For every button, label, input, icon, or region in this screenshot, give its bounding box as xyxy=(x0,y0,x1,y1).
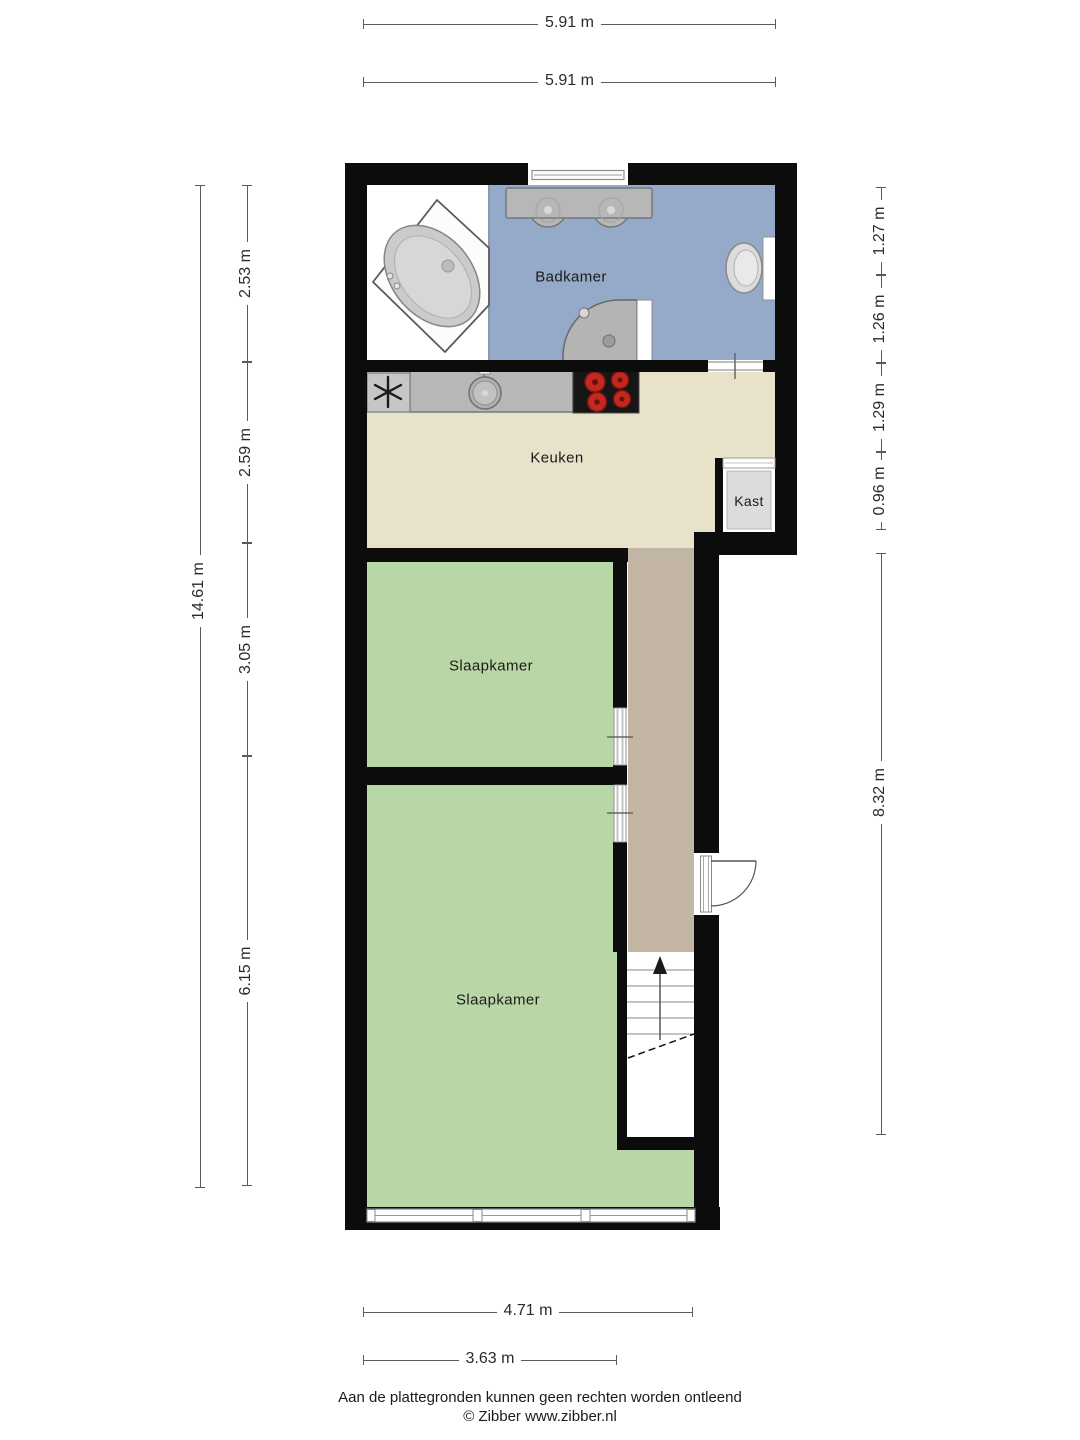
dimension-top-1: 5.91 m xyxy=(363,16,776,32)
room-label-slaapkamer-1: Slaapkamer xyxy=(449,658,533,675)
wall-left xyxy=(345,163,367,1230)
shower-door xyxy=(637,300,652,362)
dimension-line xyxy=(881,522,882,529)
dimension-bottom-2: 3.63 m xyxy=(363,1352,617,1368)
kitchen-counter xyxy=(367,366,639,413)
window-kast xyxy=(723,458,775,468)
dimension-line xyxy=(881,824,882,1134)
bathtub-drain xyxy=(442,260,454,272)
dimension-label: 14.61 m xyxy=(190,555,208,627)
dimension-tick xyxy=(876,553,886,554)
room-label-keuken: Keuken xyxy=(530,450,583,467)
dimension-bottom-1: 4.71 m xyxy=(363,1304,693,1320)
dimension-label: 4.71 m xyxy=(497,1302,560,1320)
dimension-line xyxy=(200,627,201,1187)
dimension-label: 0.96 m xyxy=(871,460,889,523)
dimension-line xyxy=(364,1312,497,1313)
shower-drain xyxy=(603,335,615,347)
room-slaapkamer2-floor-extension xyxy=(367,1147,694,1207)
dimension-line xyxy=(247,363,248,421)
dimension-tick xyxy=(242,1185,252,1186)
hallway-floor xyxy=(628,548,694,952)
dimension-label: 2.59 m xyxy=(237,421,255,484)
wall-bath-kitchen-right xyxy=(763,360,777,372)
wall-bath-kitchen-left xyxy=(345,360,708,372)
dimension-right-seg-3: 1.29 m xyxy=(873,363,889,452)
dimension-tick xyxy=(242,185,252,186)
dimension-label: 1.26 m xyxy=(871,288,889,351)
dimension-left-seg-3: 3.05 m xyxy=(239,543,255,756)
dimension-tick xyxy=(775,77,776,87)
dimension-line xyxy=(559,1312,692,1313)
wall-bedroom-divider xyxy=(345,767,627,785)
floor-plan-page: Badkamer Keuken Kast Slaapkamer Slaapkam… xyxy=(0,0,1080,1440)
dimension-tick xyxy=(692,1307,693,1317)
dimension-label: 3.05 m xyxy=(237,618,255,681)
footer-disclaimer: Aan de plattegronden kunnen geen rechten… xyxy=(0,1388,1080,1407)
dimension-line xyxy=(247,305,248,361)
dimension-line xyxy=(247,1002,248,1185)
footer: Aan de plattegronden kunnen geen rechten… xyxy=(0,1388,1080,1426)
dimension-line xyxy=(881,350,882,362)
dimension-line xyxy=(601,82,775,83)
wall-stairwell-bottom xyxy=(617,1137,694,1150)
dimension-line xyxy=(247,544,248,618)
entrance-door xyxy=(694,853,756,915)
wall-right-upper xyxy=(775,163,797,555)
dimension-left-seg-2: 2.59 m xyxy=(239,362,255,543)
wall-kitchen-bedroom xyxy=(345,548,628,562)
dimension-right-total: 8.32 m xyxy=(873,553,889,1135)
cooktop xyxy=(573,371,639,413)
dimension-line xyxy=(200,186,201,555)
room-label-badkamer: Badkamer xyxy=(535,269,607,286)
dimension-label: 1.29 m xyxy=(871,376,889,439)
dimension-right-seg-4: 0.96 m xyxy=(873,452,889,530)
dimension-line xyxy=(881,364,882,376)
dimension-line xyxy=(881,262,882,274)
wall-kast-left xyxy=(715,458,723,532)
dimension-right-seg-1: 1.27 m xyxy=(873,187,889,275)
floor-plan-drawing xyxy=(0,0,1080,1440)
bathtub-faucet xyxy=(387,273,393,279)
dimension-line xyxy=(364,24,538,25)
dimension-tick xyxy=(242,543,252,544)
dimension-tick xyxy=(616,1355,617,1365)
dimension-label: 2.53 m xyxy=(237,242,255,305)
wall-bedroom-right-c xyxy=(613,842,627,952)
dimension-tick xyxy=(876,452,886,453)
dimension-label: 6.15 m xyxy=(237,940,255,1003)
dimension-line xyxy=(247,757,248,940)
dimension-tick xyxy=(195,1187,205,1188)
staircase xyxy=(627,952,694,1137)
dimension-line xyxy=(881,439,882,451)
window-top xyxy=(528,163,628,185)
dimension-label: 1.27 m xyxy=(871,200,889,263)
dimension-left-seg-4: 6.15 m xyxy=(239,756,255,1186)
dimension-left-seg-1: 2.53 m xyxy=(239,185,255,362)
dimension-tick xyxy=(242,756,252,757)
dimension-line xyxy=(247,186,248,242)
dimension-line xyxy=(247,484,248,542)
dimension-tick xyxy=(876,275,886,276)
footer-copyright: © Zibber www.zibber.nl xyxy=(0,1407,1080,1426)
dimension-line xyxy=(364,1360,459,1361)
wall-stairwell-left xyxy=(617,952,627,1137)
window-bottom xyxy=(367,1209,695,1222)
dimension-tick xyxy=(876,363,886,364)
dimension-line xyxy=(601,24,775,25)
dimension-line xyxy=(881,276,882,288)
dimension-label: 5.91 m xyxy=(538,72,601,90)
dimension-line xyxy=(881,554,882,761)
dimension-left-total: 14.61 m xyxy=(192,185,208,1188)
dimension-line xyxy=(881,188,882,200)
dimension-tick xyxy=(876,529,886,530)
dimension-tick xyxy=(195,185,205,186)
shower-head xyxy=(579,308,589,318)
dimension-top-2: 5.91 m xyxy=(363,74,776,90)
dimension-label: 3.63 m xyxy=(459,1350,522,1368)
dimension-label: 8.32 m xyxy=(871,761,889,824)
wall-hall-right-a xyxy=(694,537,719,853)
room-label-slaapkamer-2: Slaapkamer xyxy=(456,992,540,1009)
dimension-line xyxy=(247,681,248,755)
dimension-tick xyxy=(775,19,776,29)
bathtub-faucet2 xyxy=(394,283,400,289)
wall-bedroom-right-a xyxy=(613,548,627,708)
dimension-tick xyxy=(876,1134,886,1135)
dimension-label: 5.91 m xyxy=(538,14,601,32)
wall-hall-right-b xyxy=(694,915,719,1207)
dimension-right-seg-2: 1.26 m xyxy=(873,275,889,363)
dimension-tick xyxy=(242,362,252,363)
dimension-tick xyxy=(876,187,886,188)
room-label-kast: Kast xyxy=(734,493,764,509)
dimension-line xyxy=(364,82,538,83)
dimension-line xyxy=(521,1360,616,1361)
